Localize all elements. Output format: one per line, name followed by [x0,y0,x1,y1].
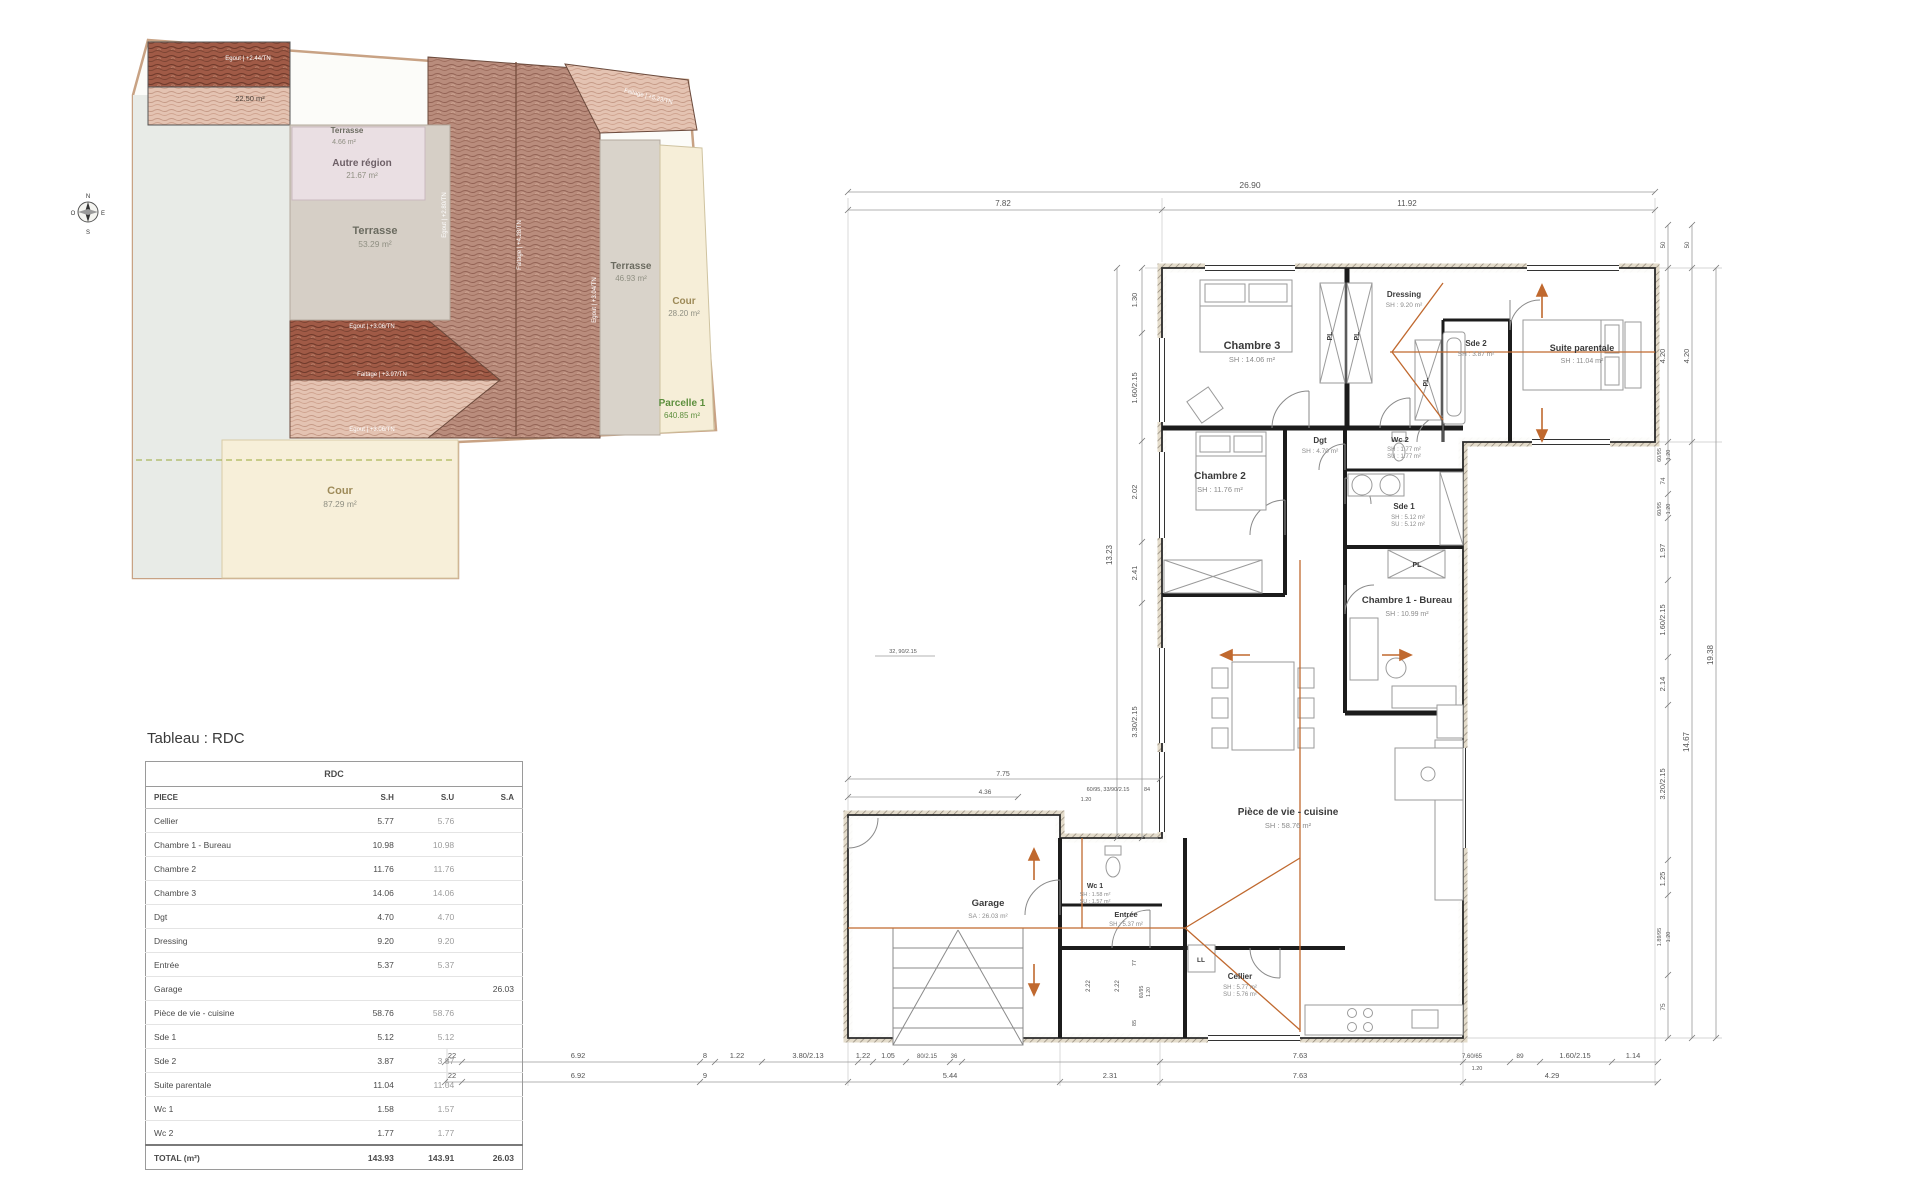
svg-text:19.38: 19.38 [1706,644,1715,665]
roof-label-tl: Egout | +2.44/TN [225,56,270,62]
table-columns-row: PIECE S.H S.U S.A [146,787,523,809]
terrasse-main-area: 53.29 m² [358,239,392,249]
table-row: Chambre 1 - Bureau 10.98 10.98 [146,833,523,857]
col-piece: PIECE [146,787,342,809]
terrasse-east-area: 46.93 m² [615,274,647,283]
svg-text:SU : 5.12 m²: SU : 5.12 m² [1391,522,1425,528]
svg-text:SU : 5.76 m²: SU : 5.76 m² [1223,992,1257,998]
svg-text:4.36: 4.36 [979,789,992,796]
svg-text:SH : 3.87 m²: SH : 3.87 m² [1458,351,1495,358]
room-dressing: Dressing [1387,290,1421,299]
svg-text:1.97: 1.97 [1658,544,1667,559]
roof-label-gable-mid: Faitage | +3.97/TN [357,372,407,378]
svg-text:8: 8 [703,1051,707,1060]
svg-text:N: N [86,194,90,200]
svg-text:SU : 1.57 m²: SU : 1.57 m² [1080,899,1111,905]
table-row: Garage 26.03 [146,977,523,1001]
site-plan: Terrasse 4.66 m² Autre région 21.67 m² T… [71,40,716,578]
svg-text:13.23: 13.23 [1105,544,1114,565]
room-entree: Entrée [1114,910,1137,919]
table-row: Wc 1 1.58 1.57 [146,1097,523,1121]
svg-text:9: 9 [703,1071,707,1080]
svg-text:1.22: 1.22 [856,1051,871,1060]
closet-pl-2: PL [1354,331,1361,341]
table-header-row: RDC [146,762,523,787]
svg-text:60/95: 60/95 [1657,448,1663,462]
svg-text:50: 50 [1661,241,1667,248]
cour-south-area: 87.29 m² [323,499,357,509]
col-sh: S.H [342,787,402,809]
table-row: Sde 2 3.87 3.87 [146,1049,523,1073]
svg-text:SH : 9.20 m²: SH : 9.20 m² [1386,302,1423,309]
annex-roof-lower [148,87,290,125]
svg-text:4.29: 4.29 [1545,1071,1560,1080]
table-row: Dressing 9.20 9.20 [146,929,523,953]
cour-east-area [660,145,714,433]
compass-icon: N S E O [71,194,105,236]
svg-text:6.92: 6.92 [571,1071,586,1080]
svg-text:2.31: 2.31 [1103,1071,1118,1080]
svg-text:7.63: 7.63 [1293,1051,1308,1060]
closet-pl-3: PL [1423,377,1430,387]
room-suite: Suite parentale [1550,343,1615,353]
room-chambre1: Chambre 1 - Bureau [1362,595,1452,606]
table-total-row: TOTAL (m²) 143.93 143.91 26.03 [146,1145,523,1170]
table-row: Sde 1 5.12 5.12 [146,1025,523,1049]
svg-text:60/95: 60/95 [1139,986,1145,999]
svg-text:85: 85 [1132,1020,1138,1026]
svg-text:11.92: 11.92 [1397,199,1417,208]
area-table-section: Tableau : RDC RDC PIECE S.H S.U S.A Cell… [145,730,523,1170]
table-row: Chambre 3 14.06 14.06 [146,881,523,905]
svg-text:2.02: 2.02 [1130,485,1139,500]
table-row: Chambre 2 11.76 11.76 [146,857,523,881]
roof-label-faitage: Faitage | +4.28/TN [517,220,523,270]
svg-text:SH : 10.99 m²: SH : 10.99 m² [1385,611,1429,618]
svg-text:2.14: 2.14 [1658,677,1667,692]
svg-text:SH : 11.04 m²: SH : 11.04 m² [1561,358,1604,365]
annex-roof-area: 22.50 m² [235,94,265,103]
terrasse-east-label: Terrasse [611,261,652,272]
svg-text:1.20: 1.20 [1666,932,1672,943]
svg-text:SU : 1.77 m²: SU : 1.77 m² [1387,454,1421,460]
svg-text:SH : 11.76 m²: SH : 11.76 m² [1197,485,1243,494]
svg-text:O: O [71,211,76,217]
closet-pl-4: PL [1413,562,1423,569]
svg-text:1.89/95: 1.89/95 [1657,928,1663,946]
room-dgt: Dgt [1313,436,1327,445]
table-header: RDC [146,762,523,787]
svg-text:1.25: 1.25 [1658,872,1667,887]
svg-text:SA : 26.03 m²: SA : 26.03 m² [968,913,1008,920]
svg-text:SH : 5.37 m²: SH : 5.37 m² [1109,922,1143,928]
svg-text:14.67: 14.67 [1682,731,1691,752]
floor-plan-document: Terrasse 4.66 m² Autre région 21.67 m² T… [0,0,1920,1198]
room-sde1: Sde 1 [1393,502,1415,511]
room-garage: Garage [972,898,1005,909]
svg-text:1.20: 1.20 [1081,797,1092,803]
terrasse-main-label: Terrasse [352,225,397,237]
closet-pl-1: PL [1327,331,1334,341]
cour-south-area [222,440,458,578]
table-row: Cellier 5.77 5.76 [146,809,523,833]
total-label: TOTAL (m²) [146,1145,342,1170]
svg-text:75: 75 [1660,1003,1667,1011]
svg-text:89: 89 [1516,1053,1524,1060]
col-sa: S.A [462,787,522,809]
svg-text:1.20: 1.20 [1472,1066,1483,1072]
table-row: Wc 2 1.77 1.77 [146,1121,523,1146]
svg-text:74: 74 [1660,477,1667,485]
washer-ll: LL [1197,957,1205,964]
svg-text:60/95, 33/90/2.15: 60/95, 33/90/2.15 [1087,787,1130,793]
room-wc2: Wc 2 [1391,435,1409,444]
svg-text:7.82: 7.82 [995,199,1011,208]
svg-text:6.92: 6.92 [571,1051,586,1060]
svg-text:36: 36 [951,1054,958,1060]
svg-text:SH : 14.06 m²: SH : 14.06 m² [1229,355,1276,364]
svg-text:1.30: 1.30 [1130,293,1139,308]
svg-text:50: 50 [1685,241,1691,248]
svg-text:7.75: 7.75 [996,771,1010,778]
room-wc1: Wc 1 [1087,883,1103,890]
svg-text:4.20: 4.20 [1682,349,1691,364]
svg-text:SH : 5.12 m²: SH : 5.12 m² [1391,515,1425,521]
svg-text:1.05: 1.05 [881,1053,895,1060]
svg-text:7.60/65: 7.60/65 [1462,1054,1483,1060]
svg-text:1.22: 1.22 [730,1051,745,1060]
annex-roof-upper [148,42,290,87]
table-row: Pièce de vie - cuisine 58.76 58.76 [146,1001,523,1025]
room-vie: Pièce de vie - cuisine [1238,807,1339,818]
room-cellier: Cellier [1228,972,1252,981]
roof-label-egout-right: Egout | +3.04/TN [592,277,598,322]
svg-text:3.20/2.15: 3.20/2.15 [1658,768,1667,799]
table-title: Tableau : RDC [147,730,523,747]
svg-text:77: 77 [1132,960,1138,966]
col-su: S.U [402,787,462,809]
svg-text:2.41: 2.41 [1130,566,1139,581]
cour-east-label: Cour [672,296,695,307]
svg-text:1.60/2.15: 1.60/2.15 [1658,604,1667,635]
svg-text:1.14: 1.14 [1626,1051,1641,1060]
svg-text:1.20: 1.20 [1146,987,1152,997]
parcelle-area: 640.85 m² [664,411,700,420]
svg-text:1.20: 1.20 [1666,450,1672,461]
terrasse-top-area: 4.66 m² [332,139,356,146]
svg-text:5.44: 5.44 [943,1071,958,1080]
svg-text:SH : 4.70 m²: SH : 4.70 m² [1302,448,1339,455]
svg-text:60/95: 60/95 [1657,502,1663,516]
svg-text:SH : 1.58 m²: SH : 1.58 m² [1080,892,1111,898]
table-row: Entrée 5.37 5.37 [146,953,523,977]
cour-south-label: Cour [327,485,353,497]
roof-label-gable-bot: Egout | +3.06/TN [349,427,394,433]
table-row: Dgt 4.70 4.70 [146,905,523,929]
garage-door [893,928,1023,1045]
roof-label-egout-left: Egout | +2.80/TN [442,192,448,237]
room-chambre3: Chambre 3 [1224,340,1281,352]
svg-text:3.30/2.15: 3.30/2.15 [1130,706,1139,737]
svg-text:SH : 5.77 m²: SH : 5.77 m² [1223,985,1257,991]
svg-text:80/2.15: 80/2.15 [917,1054,938,1060]
svg-text:7.63: 7.63 [1293,1071,1308,1080]
svg-text:1.60/2.15: 1.60/2.15 [1559,1051,1590,1060]
svg-text:1.60/2.15: 1.60/2.15 [1130,372,1139,403]
total-sh: 143.93 [342,1145,402,1170]
total-sa: 26.03 [462,1145,522,1170]
area-table: RDC PIECE S.H S.U S.A Cellier 5.77 5.76 … [145,761,523,1170]
svg-text:1.20: 1.20 [1666,504,1672,515]
svg-text:2.22: 2.22 [1086,980,1092,992]
parcelle-label: Parcelle 1 [659,398,706,409]
room-sde2: Sde 2 [1465,339,1487,348]
svg-text:84: 84 [1144,787,1150,793]
svg-text:E: E [101,211,105,217]
svg-text:26.90: 26.90 [1239,180,1261,190]
svg-text:SH : 58.76 m²: SH : 58.76 m² [1265,821,1312,830]
room-chambre2: Chambre 2 [1194,471,1246,482]
autre-region-label: Autre région [332,158,391,169]
roof-label-tr-egout: Egout | +4.04/TN [617,56,663,68]
autre-region-area: 21.67 m² [346,171,378,180]
svg-text:S: S [86,230,90,236]
roof-label-gable-top: Egout | +3.06/TN [349,324,394,330]
terrasse-top-label: Terrasse [331,126,364,135]
svg-text:32, 90/2.15: 32, 90/2.15 [889,649,917,655]
total-su: 143.91 [402,1145,462,1170]
terrasse-east-area [600,140,660,435]
svg-text:2.22: 2.22 [1115,980,1121,992]
svg-text:4.20: 4.20 [1658,349,1667,364]
svg-text:SH : 1.77 m²: SH : 1.77 m² [1387,447,1421,453]
table-row: Suite parentale 11.04 11.04 [146,1073,523,1097]
svg-text:3.80/2.13: 3.80/2.13 [792,1051,823,1060]
cour-east-area: 28.20 m² [668,309,700,318]
